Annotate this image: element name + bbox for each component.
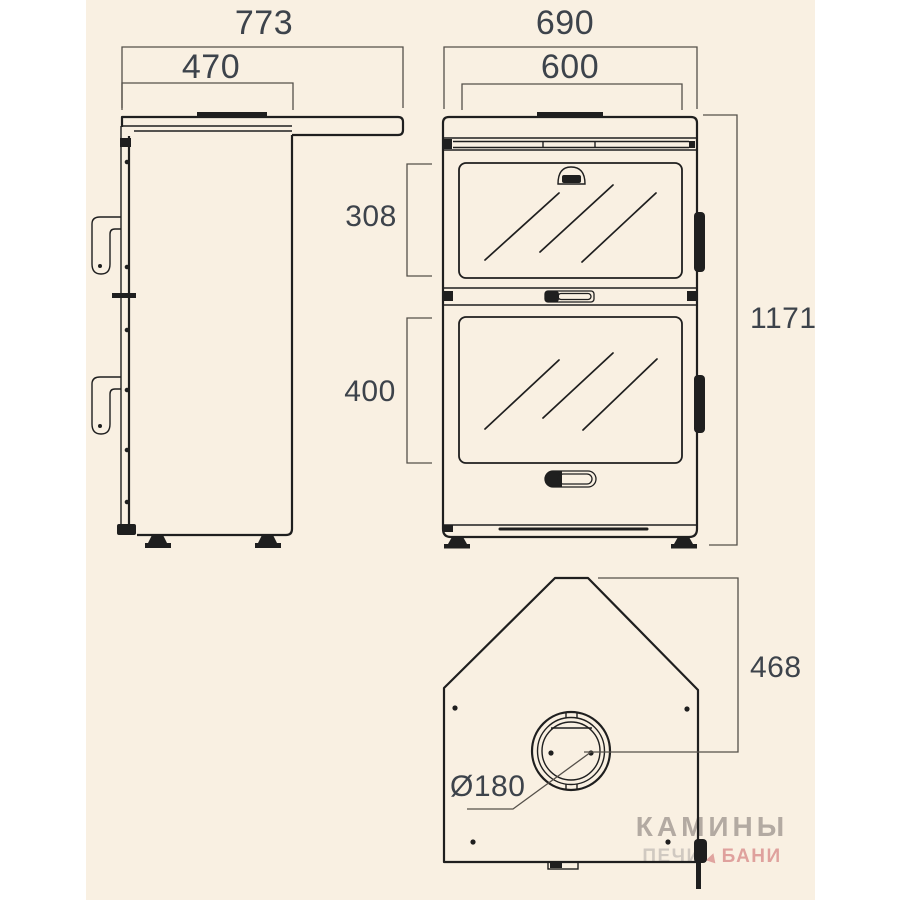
dim-label-470: 470	[151, 50, 271, 84]
drawing-page: КАМИНЫ ПЕЧИ БАНИ	[0, 0, 900, 900]
dim-label-773: 773	[204, 6, 324, 40]
top-outline	[444, 578, 698, 862]
flue-notches	[566, 712, 577, 790]
foot	[145, 535, 171, 548]
drawer-handle-cap	[545, 471, 562, 487]
top-band-lines	[443, 138, 697, 150]
dim-label-308: 308	[311, 202, 431, 232]
band-end-cap	[443, 139, 452, 149]
air-control-slot	[558, 294, 591, 300]
rivet-dot	[125, 265, 130, 270]
upper-door-handle	[92, 217, 121, 274]
rivet-dot	[125, 388, 130, 393]
rivet-dot	[125, 500, 130, 505]
dim-bracket-1171	[703, 115, 737, 545]
divider-end-cap	[443, 291, 453, 301]
lower-door-handle	[92, 377, 121, 434]
dim-bracket-470	[122, 83, 293, 110]
screw-dot	[470, 839, 475, 844]
screw-dot	[665, 839, 670, 844]
top-hinge	[120, 138, 131, 147]
dim-bracket-600	[462, 84, 682, 110]
plate-underside-lines	[122, 126, 292, 131]
rear-knob-stem	[696, 862, 701, 889]
screw-dot	[684, 706, 689, 711]
handle-screw	[98, 264, 102, 268]
plinth-cap	[443, 525, 453, 532]
lower-door	[459, 317, 682, 463]
dim-label-d180: Ø180	[450, 772, 525, 802]
foot	[444, 537, 470, 549]
dim-label-468: 468	[750, 653, 802, 683]
rear-knob	[694, 839, 707, 863]
screw-dot	[452, 705, 457, 710]
lower-hinge	[694, 375, 705, 433]
door-latch	[112, 293, 136, 298]
rivet-dot	[125, 328, 130, 333]
hob-plate	[537, 112, 603, 118]
dim-label-400: 400	[310, 377, 430, 407]
dim-label-600: 600	[510, 50, 630, 84]
face-foot	[117, 524, 136, 535]
upper-hinge	[694, 212, 705, 272]
dim-bracket-468	[584, 578, 738, 752]
foot	[255, 535, 281, 548]
upper-door-knob-bar	[562, 175, 581, 183]
flue-screw	[548, 750, 553, 755]
foot	[671, 537, 697, 549]
side-view	[92, 47, 403, 548]
front-view	[407, 47, 737, 549]
body-outline	[137, 135, 292, 535]
rivet-dot	[125, 160, 130, 165]
lower-glass-reflections	[485, 353, 657, 430]
band-end-cap	[689, 141, 695, 148]
upper-glass-reflections	[485, 185, 656, 262]
air-control-knob	[545, 291, 559, 302]
front-tab-fill	[550, 863, 562, 868]
dim-label-690: 690	[505, 6, 625, 40]
handle-screw	[98, 424, 102, 428]
stove-technical-drawing	[0, 0, 900, 900]
divider-end-cap	[687, 291, 697, 301]
hob-plate	[197, 112, 267, 118]
top-view	[444, 578, 738, 889]
drawer-handle-slot	[558, 474, 592, 484]
flue-collar-outer	[532, 712, 610, 790]
rivet-dot	[125, 448, 130, 453]
dim-label-1171: 1171	[750, 304, 817, 334]
